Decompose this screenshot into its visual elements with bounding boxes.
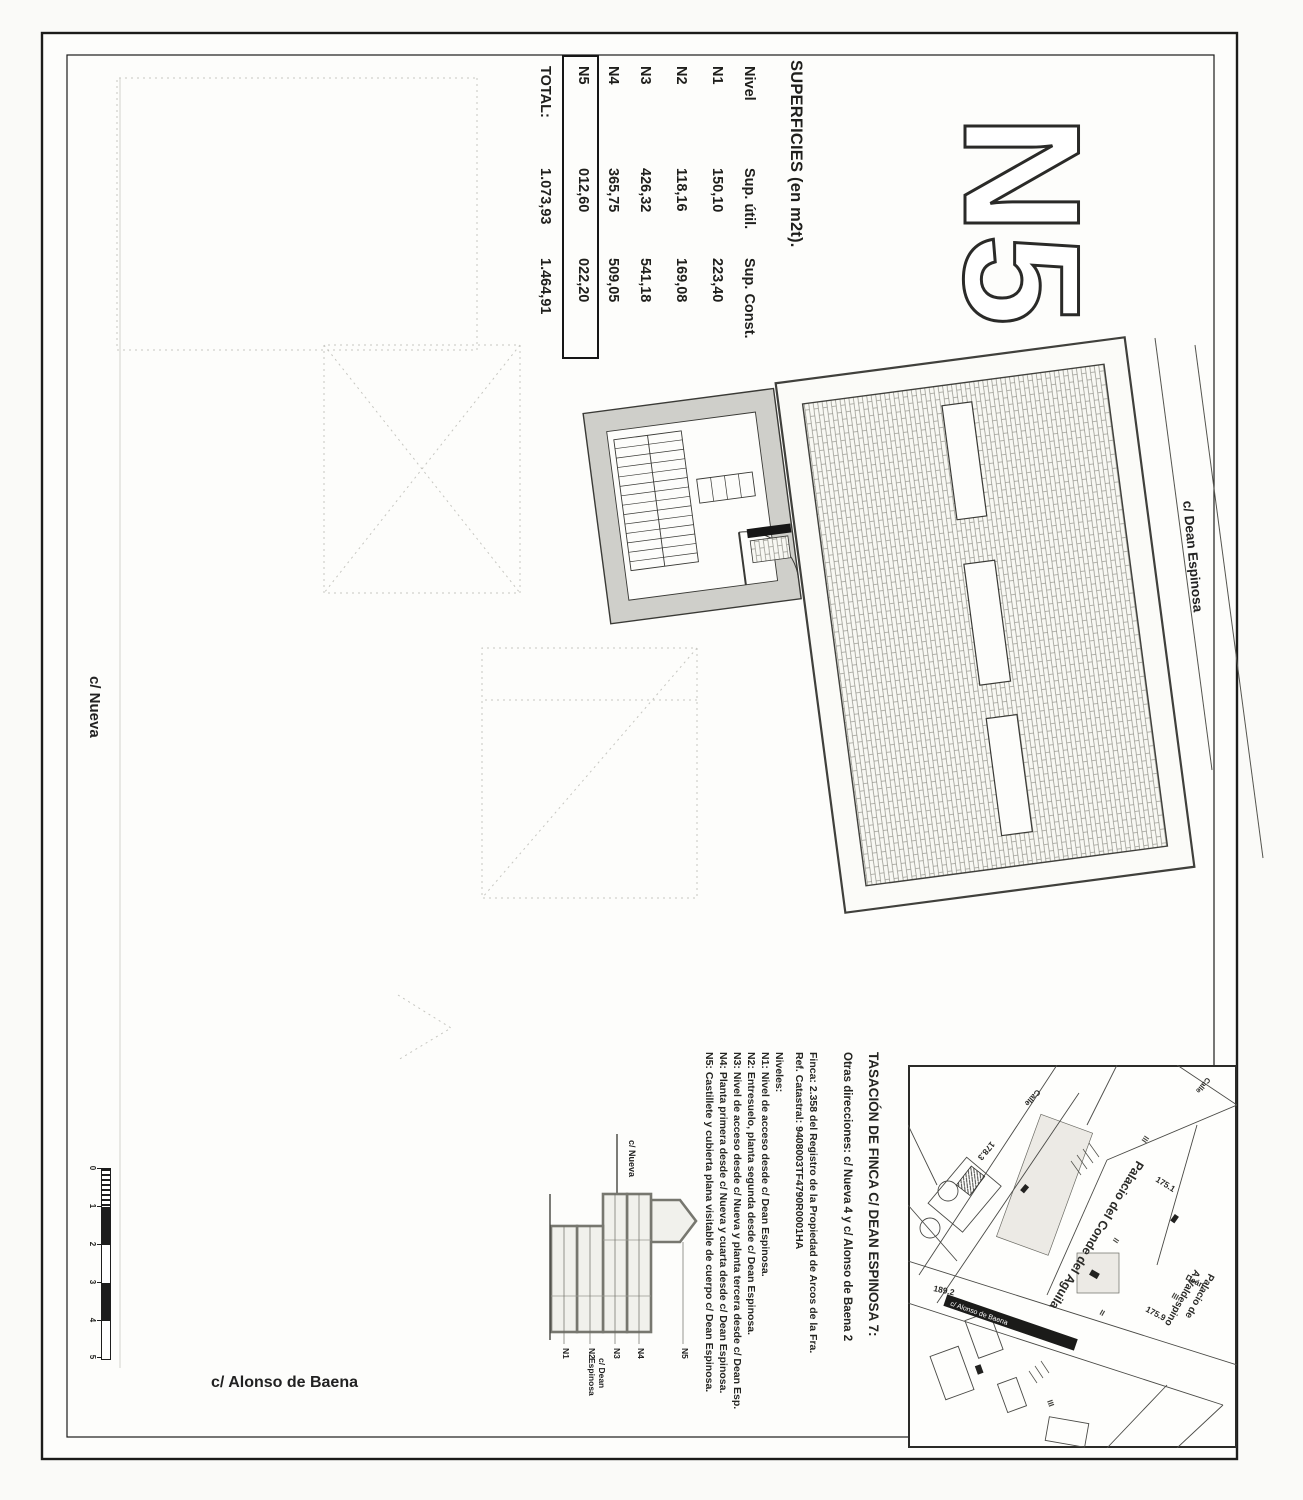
map-border [909,1066,1236,1447]
superficies-table: SUPERFICIES (en m2t). Nivel Sup. útil. S… [517,60,805,360]
row-n3-util: 426,32 [637,168,653,212]
row-n3-const: 541,18 [637,258,653,302]
row-n2-const: 169,08 [673,258,689,302]
scale-num-5: 5 [88,1355,97,1359]
row-n1-nivel: N1 [709,66,725,85]
row-total-const: 1.464,91 [537,258,553,314]
row-total-label: TOTAL: [537,66,553,118]
row-n1-util: 150,10 [709,168,725,212]
row-n5-nivel: N5 [575,66,591,85]
notes-title: TASACIÓN DE FINCA C/ DEAN ESPINOSA 7: [866,1052,881,1452]
notes-nivel-n1: N1: Nivel de acceso desde c/ Dean Espino… [759,1052,771,1452]
row-n5-const: 022,20 [575,258,591,302]
street-label-nueva: c/ Nueva [86,676,103,738]
scale-tick [97,1168,101,1169]
hatched-landing [750,536,791,563]
section-label-n4: N4 [636,1348,646,1359]
notes-other-addresses: Otras direcciones: c/ Nueva 4 y c/ Alons… [841,1052,853,1452]
scale-seg-2 [102,1245,110,1283]
scale-seg-subdivided [102,1169,110,1207]
scale-tick [97,1206,101,1207]
scale-tick [97,1357,101,1358]
notes-niveles-label: Niveles: [773,1052,785,1452]
row-n4-util: 365,75 [605,168,621,212]
site-location-map: c/ Alonso de Baena Palacio del Conde del… [908,1065,1237,1448]
col-header-util: Sup. útil. [741,168,757,229]
notes-nivel-n5: N5: Castillete y cubierta plana visitabl… [703,1052,715,1452]
col-header-nivel: Nivel [741,66,757,101]
notes-catastral: Ref. Catastral: 9408003TF4790R0001HA [793,1052,805,1452]
castillete-plan [583,388,801,623]
col-header-const: Sup. Const. [741,258,757,339]
section-street-bottom: c/ Dean Espinosa [587,1358,607,1410]
notes-nivel-n3: N3: Nivel de acceso desde c/ Nueva y pla… [731,1052,743,1452]
section-label-n5: N5 [680,1348,690,1359]
scale-seg-4 [102,1321,110,1357]
scale-num-0: 0 [88,1166,97,1170]
row-total-util: 1.073,93 [537,168,553,224]
scale-seg-3 [102,1283,110,1321]
section-street-top: c/ Nueva [627,1140,637,1177]
scale-num-4: 4 [88,1318,97,1322]
street-label-alonso-de-baena: c/ Alonso de Baena [211,1374,358,1392]
scale-tick [97,1320,101,1321]
roof-plan [776,337,1195,912]
table-title: SUPERFICIES (en m2t). [786,60,805,248]
row-n1-const: 223,40 [709,258,725,302]
scale-tick [97,1244,101,1245]
scale-num-3: 3 [88,1280,97,1284]
appraisal-notes: TASACIÓN DE FINCA C/ DEAN ESPINOSA 7: Ot… [703,1052,881,1452]
section-label-n1: N1 [561,1348,571,1359]
scale-num-2: 2 [88,1242,97,1246]
row-n2-nivel: N2 [673,66,689,85]
scanned-plan-sheet: N5 [0,0,1303,1500]
row-n2-util: 118,16 [673,168,689,212]
scale-seg-1 [102,1207,110,1245]
scale-tick [97,1282,101,1283]
scale-bar-segments [101,1168,111,1360]
notes-finca: Finca: 2.358 del Registro de la Propieda… [807,1052,819,1452]
row-n4-const: 509,05 [605,258,621,302]
row-n4-nivel: N4 [605,66,621,85]
drawing-canvas-landscape: N5 [0,0,1303,1500]
notes-nivel-n4: N4: Planta primera desde c/ Nueva y cuar… [717,1052,729,1452]
row-n3-nivel: N3 [637,66,653,85]
section-label-n3: N3 [612,1348,622,1359]
graphic-scale-bar: 0 1 2 3 4 5 [85,1168,111,1358]
section-label-n2: N2 [587,1348,597,1359]
row-n5-util: 012,60 [575,168,591,212]
plan-level-label: N5 [930,115,1114,326]
scale-num-1: 1 [88,1204,97,1208]
notes-nivel-n2: N2: Entresuelo, planta segunda desde c/ … [745,1052,757,1452]
